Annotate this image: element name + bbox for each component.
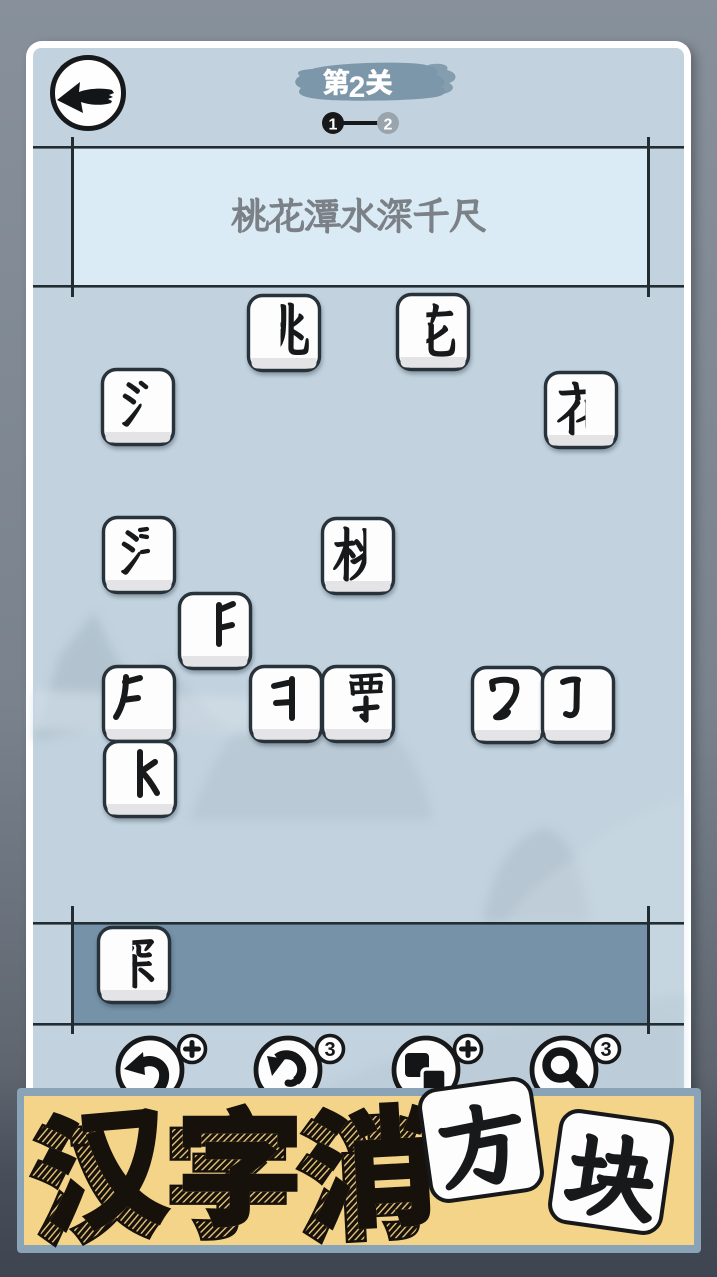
svg-text:2: 2 [384, 117, 393, 134]
svg-text:2: 2 [349, 71, 366, 104]
svg-text:1: 1 [329, 117, 338, 134]
svg-text:3: 3 [600, 1039, 611, 1061]
svg-text:3: 3 [324, 1039, 335, 1061]
